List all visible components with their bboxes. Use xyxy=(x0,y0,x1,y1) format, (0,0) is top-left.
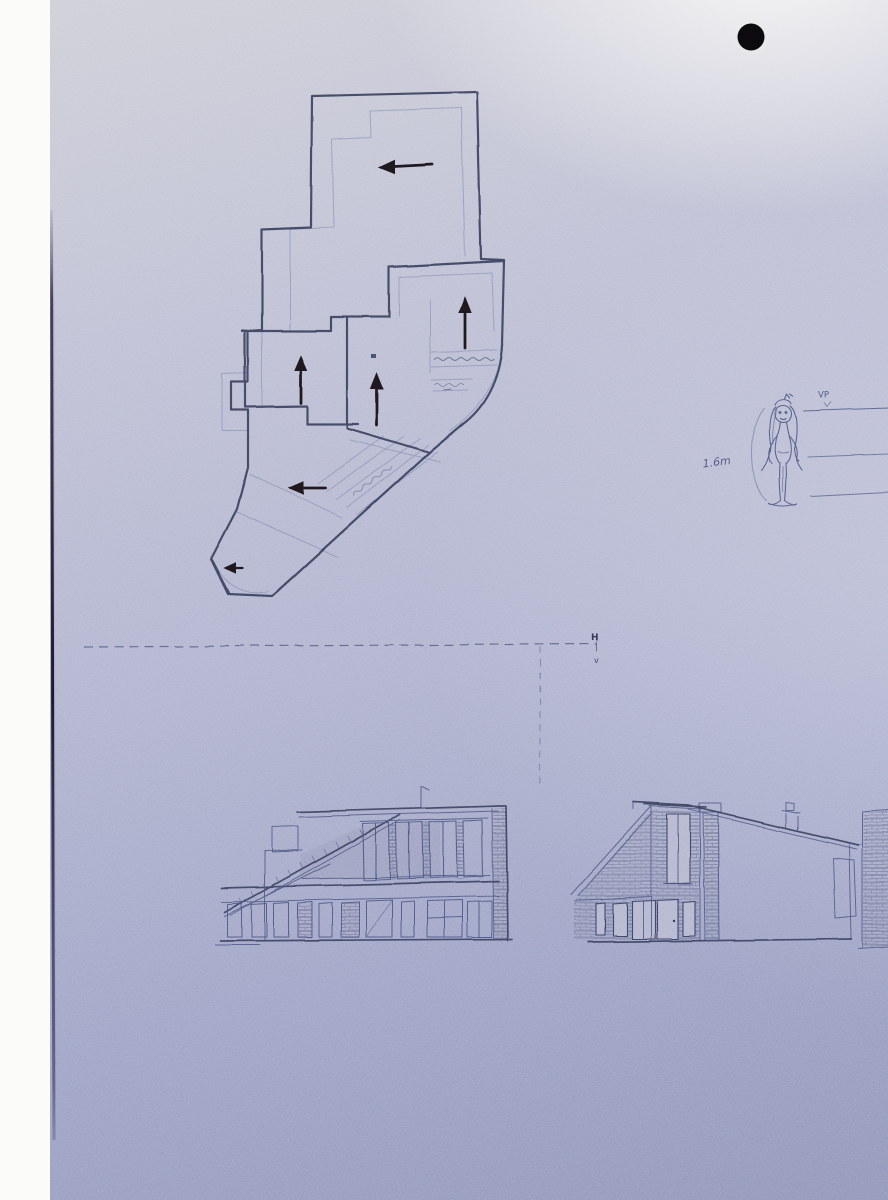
photo-grain-overlay xyxy=(50,0,888,1200)
photographed-sketch: H v xyxy=(0,0,888,1200)
sketch-svg: H v xyxy=(0,0,888,1200)
